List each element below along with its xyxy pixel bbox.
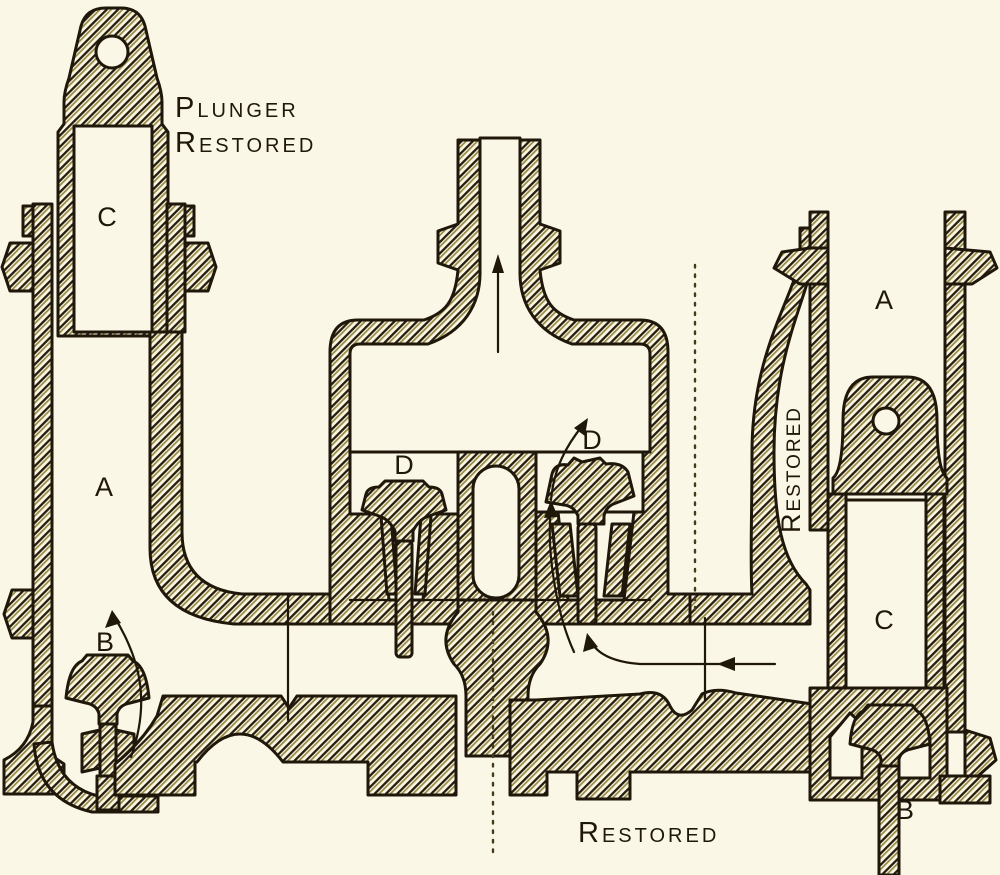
label-left-delivery-valve: D [394,450,414,480]
right-upper-flange-left [774,248,828,284]
duplex-plunger-pump-diagram: .metal{fill:url(#hatch);stroke:#1e170a;s… [0,0,1000,875]
caption-plunger-line2: Restored [175,127,316,159]
label-right-plunger-cavity: C [874,605,894,635]
left-cylinder-wall-right-top [167,204,185,332]
left-base-casting [115,696,456,795]
caption-plunger-line1: Plunger [175,92,299,124]
pump-cross-section-figure: .metal{fill:url(#hatch);stroke:#1e170a;s… [0,0,1000,875]
right-cylinder-wall-right [945,212,965,732]
right-plunger-tube-wall-r [926,494,944,710]
caption-restored-vertical: Restored [776,406,806,533]
caption-restored-bottom: Restored [578,817,719,849]
delivery-chamber-interior [350,138,650,452]
right-plunger-head [833,377,947,494]
left-upper-flange-right [185,243,216,291]
label-left-suction-valve: B [96,627,114,657]
right-passage-flow-arrow [583,633,775,671]
label-right-suction-valve: B [896,795,914,825]
left-lower-flange [4,590,33,638]
right-upper-flange-right [945,248,997,284]
label-right-cylinder-bore: A [875,285,893,315]
left-suction-valve-seat-l [82,730,100,772]
right-plunger-cavity-window [846,500,926,703]
label-right-delivery-valve: D [582,425,602,455]
right-passage-curve [590,640,775,664]
right-delivery-valve-stem [578,524,596,624]
right-plunger-tube-wall-l [828,494,846,710]
right-plunger-eye-hole [873,408,899,434]
right-base-casting [510,690,812,799]
label-left-plunger-cavity: C [97,202,117,232]
central-slot-port [473,466,519,598]
right-passage-mid-head [717,657,735,671]
left-upper-flange [2,243,33,291]
left-gland-bump [23,206,33,236]
right-gland-bump [185,206,194,236]
left-delivery-valve-stem [396,541,412,657]
left-cylinder-wall-left [33,204,52,744]
crosshead-eye-hole [96,36,128,68]
right-foot [940,776,990,803]
right-lower-flange [965,730,996,776]
right-pump-unit [690,212,997,875]
label-left-cylinder-bore: A [95,472,113,502]
